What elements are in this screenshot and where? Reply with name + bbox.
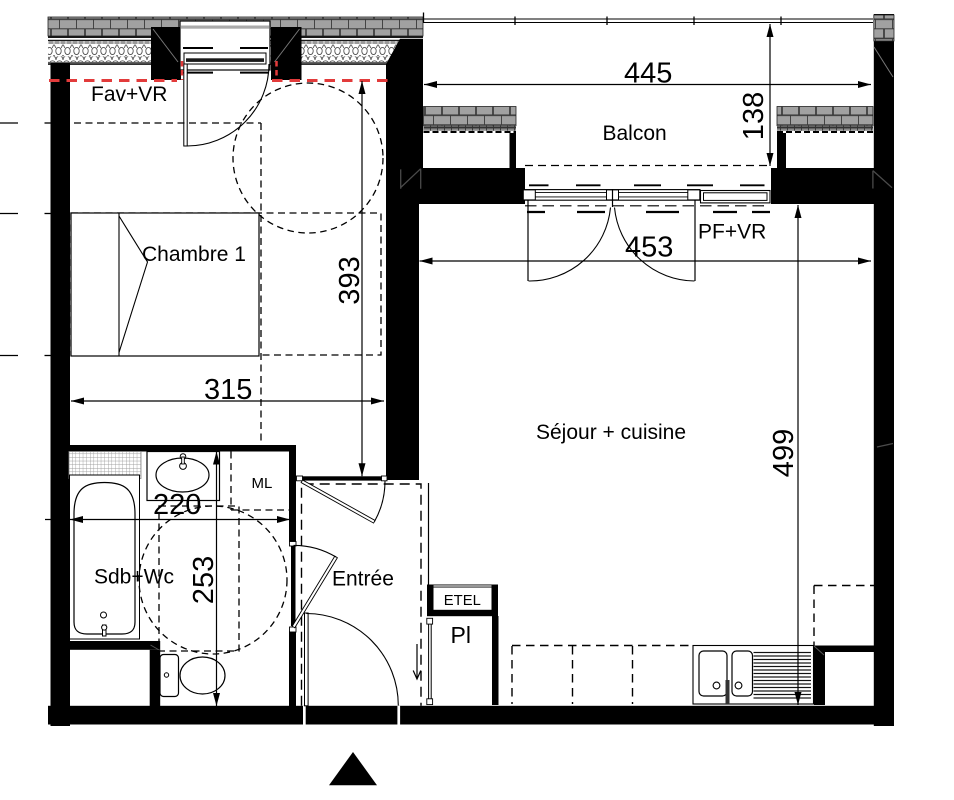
svg-text:315: 315	[204, 374, 252, 406]
svg-text:PF+VR: PF+VR	[698, 221, 766, 244]
svg-text:220: 220	[153, 489, 201, 521]
svg-text:ML: ML	[252, 475, 273, 492]
svg-text:253: 253	[188, 556, 220, 604]
svg-text:138: 138	[738, 92, 770, 140]
svg-text:Fav+VR: Fav+VR	[91, 83, 167, 106]
svg-text:Entrée: Entrée	[332, 568, 394, 591]
svg-text:393: 393	[334, 256, 366, 304]
svg-text:Chambre 1: Chambre 1	[142, 243, 246, 266]
svg-text:453: 453	[625, 232, 673, 264]
svg-text:Sdb+Wc: Sdb+Wc	[94, 566, 174, 589]
svg-text:ETEL: ETEL	[444, 593, 481, 609]
svg-text:Balcon: Balcon	[603, 122, 667, 145]
svg-text:Pl: Pl	[451, 622, 471, 648]
svg-text:445: 445	[624, 58, 672, 90]
svg-text:499: 499	[768, 429, 800, 477]
svg-text:Séjour + cuisine: Séjour + cuisine	[536, 421, 686, 444]
